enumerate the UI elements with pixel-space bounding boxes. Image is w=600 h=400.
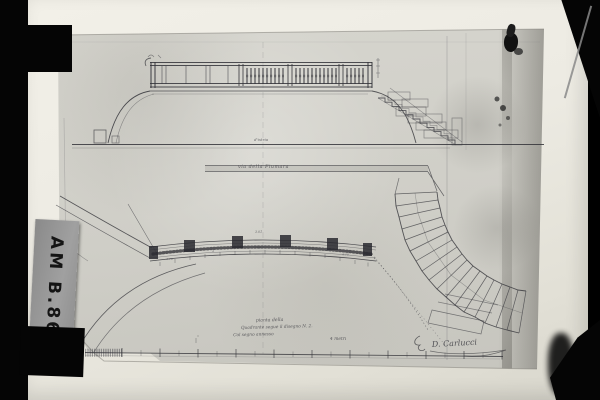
plan-dimension-ticks [160,250,368,267]
street-note-text: via della Fiumara [238,164,289,170]
elevation-note-text: d'istria [254,137,269,142]
creases-and-axis [64,33,540,360]
signature-block: D. Carlucci [415,336,506,356]
signature-text: D. Carlucci [431,338,478,349]
ink-spots [495,97,511,127]
top-ink-blot [498,24,524,62]
mount-tab-bottom-left [19,326,85,377]
plan-dim-1: 4.10 [165,257,173,261]
mount-tab-top-left [24,25,72,72]
archive-label-text: AM B.86 [41,235,66,336]
caption-line-1: pianta della [256,317,284,324]
elevation-balustrade [145,55,380,88]
plan-dim-5: 4.10 [341,253,349,257]
plan-dim-3: 2.60 [253,246,261,250]
caption-line-3: Col segno annesso [233,332,274,338]
plan-center-dim-text: 3.01 [255,230,262,234]
plan-fan-stairs [395,178,526,334]
plan-dotted-lines [372,254,445,345]
photographed-archival-drawing: d'istria via della Fiumara 3.01 4.10 4 2… [0,0,600,400]
plan-dim-4: 4 [297,247,300,251]
caption-line-2: Quadrante segue il disegno N. 2. [241,324,313,331]
blot-drip [514,48,523,55]
street-band [205,166,444,197]
plan-dim-2: 4 [211,249,214,253]
scale-label-text: 4 metri [329,337,347,342]
elevation-wall [72,91,544,148]
elevation-stairs [378,88,462,145]
